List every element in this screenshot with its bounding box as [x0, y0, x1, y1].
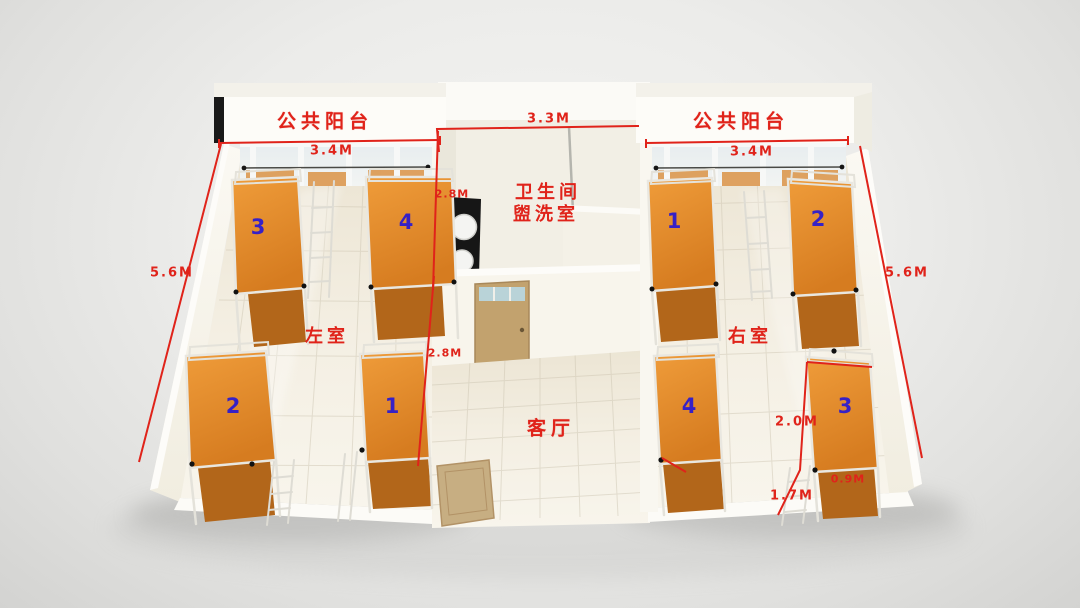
entrance-door	[437, 460, 494, 526]
dim-center-width: 3.3M	[527, 112, 571, 127]
bed-number: 3	[251, 215, 266, 239]
bunk-bed-right-3	[806, 348, 880, 521]
dim-bed-aisle: 1.7M	[770, 489, 814, 504]
bed-number: 1	[385, 394, 400, 418]
bunk-bed-right-1	[648, 169, 720, 344]
bed-number: 4	[682, 394, 697, 418]
living-room-label: 客厅	[527, 414, 575, 441]
bed-number: 2	[226, 394, 241, 418]
scene-canvas	[0, 0, 1080, 608]
bed-number: 2	[811, 207, 826, 231]
dim-balcony-left-width: 3.4M	[310, 144, 354, 159]
dim-bathroom-depth: 2.8M	[435, 188, 469, 201]
dim-left-depth: 5.6M	[150, 266, 194, 281]
bathroom-label-line2: 盥洗室	[513, 200, 579, 226]
bathroom-door	[475, 281, 529, 368]
door-handle-icon	[520, 328, 524, 332]
bed-number: 1	[667, 209, 682, 233]
living-room-back-wall	[432, 270, 650, 366]
dormitory-3d-render: 公共阳台 公共阳台 3.4M 3.4M 3.3M 卫生间 盥洗室 2.8M 2.…	[0, 0, 1080, 608]
left-balcony-side-edge	[214, 97, 224, 143]
right-balcony-roof	[636, 83, 872, 97]
left-balcony-roof	[214, 83, 446, 97]
balcony-right-label: 公共阳台	[693, 107, 789, 134]
right-balcony-door-track	[654, 167, 844, 168]
left-balcony-door-track	[242, 167, 430, 168]
dim-bed-length: 2.0M	[775, 415, 819, 430]
bed-number: 3	[838, 394, 853, 418]
right-balcony-side-edge	[854, 92, 872, 152]
living-room	[432, 264, 650, 528]
balcony-left-label: 公共阳台	[277, 107, 373, 134]
bed-number: 4	[399, 210, 414, 234]
left-room-label: 左室	[305, 322, 349, 348]
dim-living-depth: 2.8M	[428, 347, 462, 360]
dim-right-depth: 5.6M	[885, 266, 929, 281]
dim-balcony-right-width: 3.4M	[730, 145, 774, 160]
right-room-label: 右室	[728, 322, 772, 348]
dim-bed-width: 0.9M	[831, 473, 865, 486]
